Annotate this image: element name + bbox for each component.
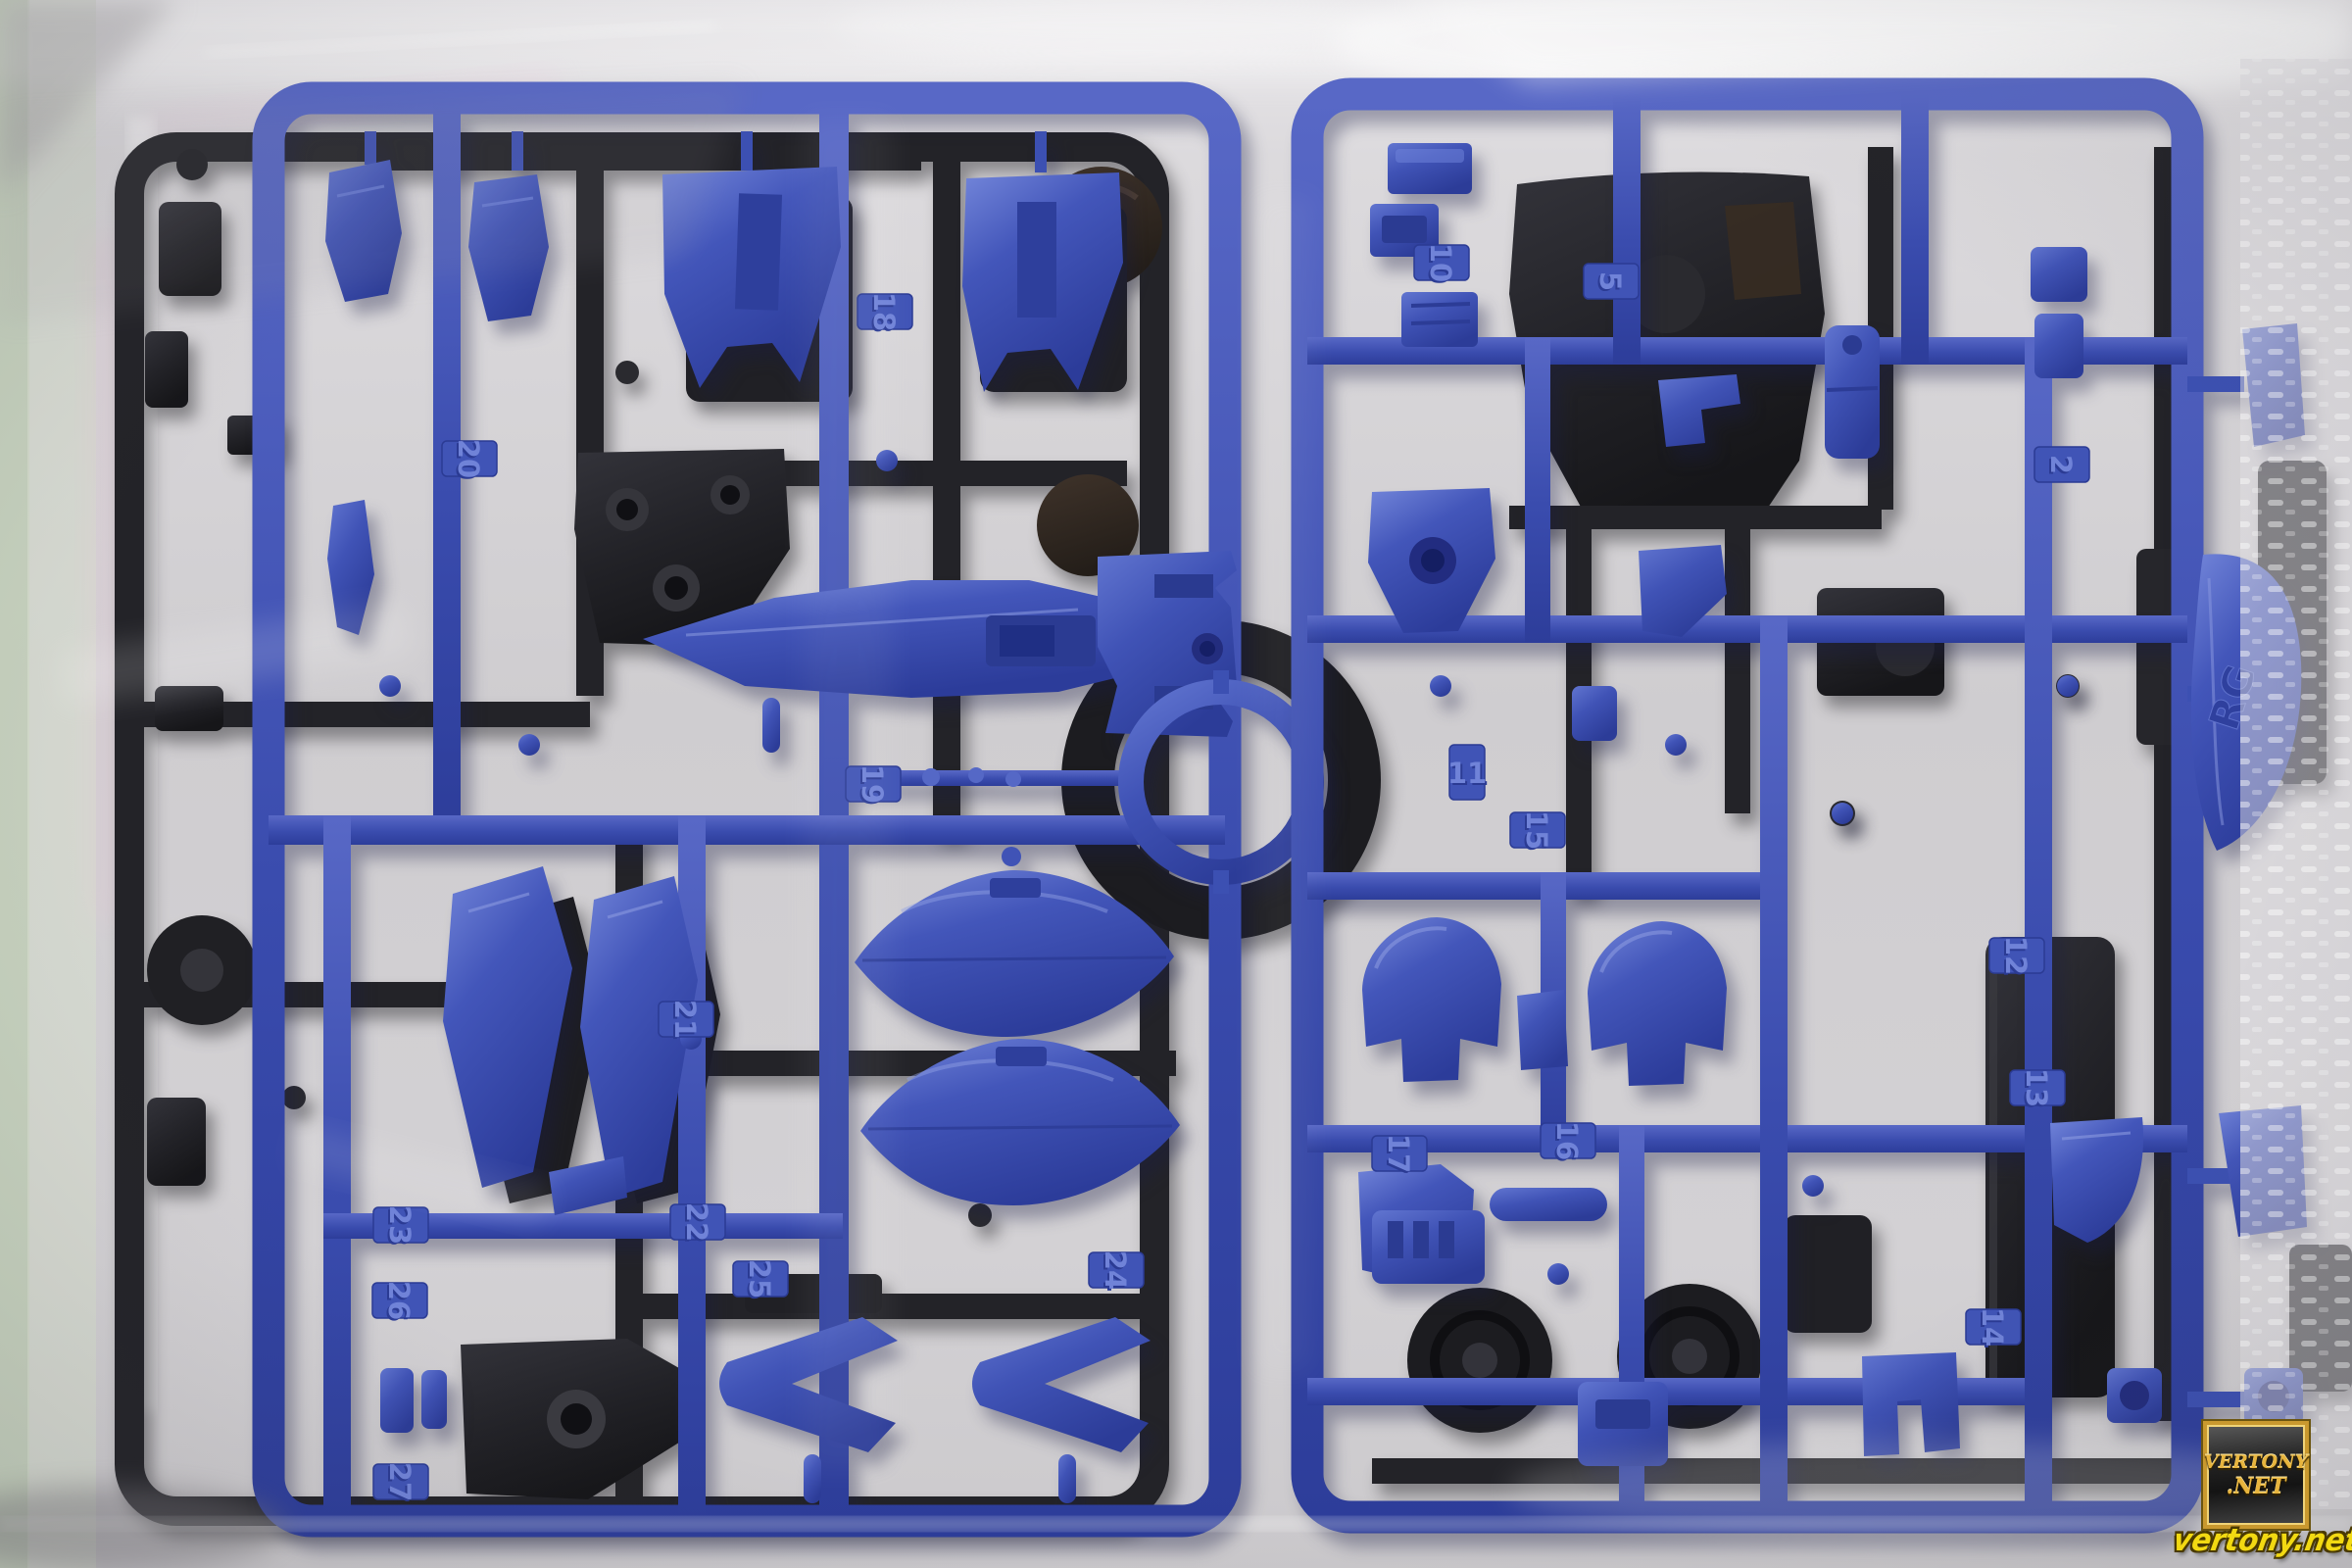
svg-text:13: 13 (2020, 1068, 2053, 1107)
part-number-tag-10: 1010 (1414, 243, 1469, 284)
svg-text:18: 18 (867, 292, 901, 331)
watermark-badge-line1: VERTONY (2204, 1451, 2308, 1473)
svg-text:2: 2 (2044, 455, 2078, 474)
svg-text:14: 14 (1976, 1307, 2009, 1347)
part-number-tag-20: 2020 (442, 439, 497, 480)
model-kit-runner-photo: RG (0, 0, 2352, 1568)
part-number-tag-18: 1818 (857, 292, 912, 333)
svg-text:16: 16 (1550, 1121, 1584, 1160)
part-number-tag-14: 1414 (1966, 1307, 2021, 1348)
part-number-tag-15: 1515 (1510, 810, 1565, 852)
part-number-tag-23: 2323 (373, 1205, 428, 1247)
part-number-tag-11: 1111 (1447, 745, 1489, 800)
svg-text:24: 24 (1099, 1250, 1132, 1290)
part-number-tag-17: 1717 (1372, 1134, 1427, 1175)
svg-text:26: 26 (382, 1281, 416, 1320)
photo-scene: RG (0, 0, 2352, 1568)
watermark-badge-line2: .NET (2227, 1474, 2286, 1499)
part-number-tag-27: 2727 (373, 1462, 428, 1503)
svg-text:25: 25 (743, 1259, 776, 1298)
part-number-tag-13: 1313 (2010, 1068, 2065, 1109)
part-number-tag-2: 22 (2034, 447, 2089, 482)
part-number-tag-25: 2525 (733, 1259, 788, 1300)
part-number-tag-5: 55 (1584, 264, 1639, 299)
part-number-tag-26: 2626 (372, 1281, 427, 1322)
svg-text:5: 5 (1593, 271, 1627, 291)
svg-text:21: 21 (668, 1000, 702, 1039)
svg-text:10: 10 (1424, 243, 1457, 282)
part-number-tag-24: 2424 (1089, 1250, 1144, 1292)
part-number-tag-12: 1212 (1989, 936, 2044, 977)
svg-text:17: 17 (1382, 1134, 1415, 1173)
svg-text:12: 12 (1999, 936, 2033, 975)
watermark-caption: vertony.net (2171, 1522, 2352, 1558)
watermark-badge: VERTONY .NET (2203, 1421, 2309, 1529)
svg-text:20: 20 (452, 439, 485, 478)
part-number-tag-19: 1919 (846, 764, 901, 806)
svg-text:15: 15 (1520, 810, 1553, 850)
svg-text:19: 19 (856, 764, 889, 804)
part-number-tag-22: 2222 (670, 1202, 725, 1244)
svg-text:27: 27 (383, 1462, 416, 1501)
svg-text:22: 22 (680, 1202, 713, 1242)
svg-text:23: 23 (383, 1205, 416, 1245)
part-number-tag-16: 1616 (1541, 1121, 1595, 1162)
part-number-tag-21: 2121 (659, 1000, 713, 1041)
svg-text:11: 11 (1447, 757, 1487, 790)
